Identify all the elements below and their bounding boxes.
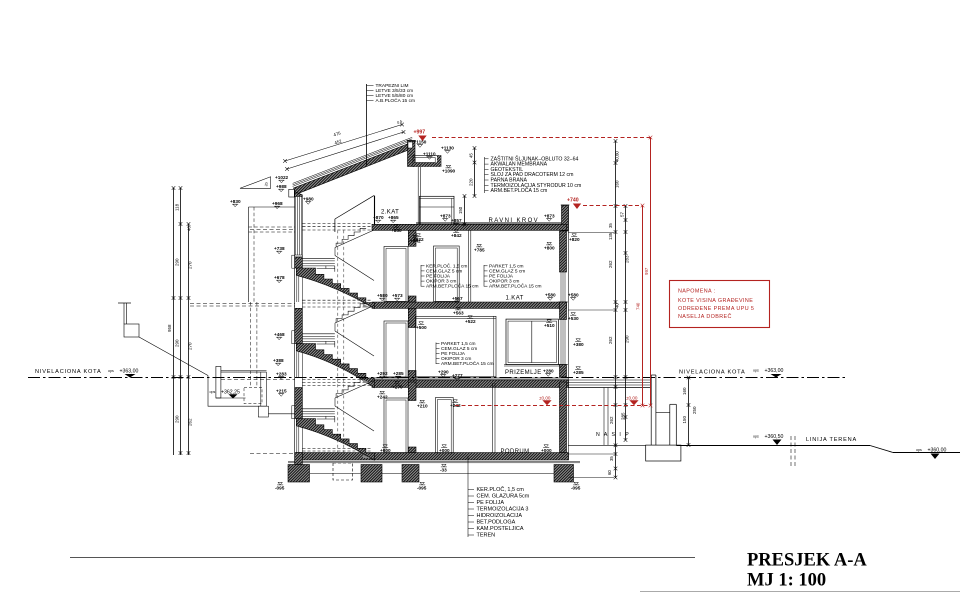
svg-text:160: 160 bbox=[615, 180, 620, 188]
svg-text:250: 250 bbox=[692, 406, 697, 414]
svg-text:285: 285 bbox=[621, 412, 626, 420]
svg-text:+277: +277 bbox=[452, 373, 463, 378]
svg-text:+530: +530 bbox=[568, 316, 579, 321]
svg-text:740: 740 bbox=[636, 302, 641, 310]
svg-text:+865: +865 bbox=[388, 215, 399, 220]
svg-text:40: 40 bbox=[615, 303, 620, 308]
svg-text:±0,00: ±0,00 bbox=[539, 396, 551, 401]
svg-text:ARM.BET.PLOČA 15 cm: ARM.BET.PLOČA 15 cm bbox=[441, 360, 494, 367]
svg-text:290: 290 bbox=[175, 415, 180, 423]
svg-text:150: 150 bbox=[682, 415, 687, 423]
svg-text:290: 290 bbox=[175, 339, 180, 347]
svg-text:+270: +270 bbox=[392, 385, 403, 390]
svg-text:958: 958 bbox=[167, 324, 172, 332]
svg-text:PARKET 1,5 cm: PARKET 1,5 cm bbox=[441, 341, 475, 347]
svg-text:+573: +573 bbox=[392, 293, 403, 298]
svg-text:+678: +678 bbox=[274, 275, 285, 280]
svg-text:+800: +800 bbox=[544, 246, 555, 251]
svg-text:+000: +000 bbox=[541, 448, 552, 453]
svg-text:ODREĐENE PREMA UPU 5: ODREĐENE PREMA UPU 5 bbox=[678, 306, 754, 312]
svg-text:290: 290 bbox=[625, 335, 630, 343]
svg-text:270: 270 bbox=[188, 342, 193, 350]
svg-text:+468: +468 bbox=[274, 332, 285, 337]
svg-text:+873: +873 bbox=[440, 214, 451, 219]
svg-text:+215: +215 bbox=[276, 389, 287, 394]
svg-text:+980: +980 bbox=[303, 197, 314, 202]
svg-text:+283: +283 bbox=[276, 372, 287, 377]
svg-text:-095: -095 bbox=[571, 486, 581, 491]
svg-text:LETVE 5/5/80 cm: LETVE 5/5/80 cm bbox=[376, 93, 414, 99]
svg-text:+290: +290 bbox=[438, 370, 449, 375]
svg-text:262: 262 bbox=[608, 336, 613, 344]
svg-text:+850: +850 bbox=[391, 228, 402, 233]
svg-text:+580: +580 bbox=[568, 293, 579, 298]
svg-text:35: 35 bbox=[608, 223, 613, 228]
svg-text:+1022: +1022 bbox=[275, 175, 289, 180]
svg-text:ops: ops bbox=[916, 448, 922, 452]
svg-text:40,60: 40,60 bbox=[615, 151, 620, 162]
svg-text:+1130: +1130 bbox=[441, 146, 454, 151]
svg-text:CEM.GLAZ 5 cm: CEM.GLAZ 5 cm bbox=[489, 268, 525, 274]
svg-text:TRAPEZNI LIM: TRAPEZNI LIM bbox=[376, 83, 409, 89]
svg-text:1.KAT: 1.KAT bbox=[506, 295, 524, 301]
svg-text:+857: +857 bbox=[451, 218, 462, 223]
svg-text:35: 35 bbox=[609, 456, 614, 461]
svg-text:ops: ops bbox=[753, 435, 759, 439]
svg-text:57: 57 bbox=[620, 211, 625, 217]
svg-text:PARKET 1,5 cm: PARKET 1,5 cm bbox=[489, 263, 523, 269]
svg-text:NIVELACIONA KOTA: NIVELACIONA KOTA bbox=[35, 369, 101, 375]
svg-text:+740: +740 bbox=[567, 198, 579, 204]
svg-text:+360,50: +360,50 bbox=[765, 434, 784, 440]
svg-text:NIVELACIONA KOTA: NIVELACIONA KOTA bbox=[679, 370, 745, 376]
svg-text:+522: +522 bbox=[465, 319, 476, 324]
svg-text:ops: ops bbox=[753, 369, 759, 373]
svg-text:LINIJA TERENA: LINIJA TERENA bbox=[806, 437, 857, 443]
svg-text:ops: ops bbox=[108, 369, 114, 373]
svg-text:LETVE 3/5/33 cm: LETVE 3/5/33 cm bbox=[376, 88, 414, 94]
svg-text:±0,00: ±0,00 bbox=[626, 396, 638, 401]
svg-text:262: 262 bbox=[608, 260, 613, 268]
svg-text:ARM.BET.PLOČA 15 cm: ARM.BET.PLOČA 15 cm bbox=[489, 283, 542, 290]
svg-text:+292: +292 bbox=[377, 371, 388, 376]
svg-text:KAM.POSTELJICA: KAM.POSTELJICA bbox=[477, 526, 524, 532]
svg-text:+000: +000 bbox=[380, 448, 391, 453]
svg-text:+285: +285 bbox=[573, 370, 584, 375]
svg-text:KOTE VISINA GRAĐEVINE: KOTE VISINA GRAĐEVINE bbox=[678, 298, 753, 304]
svg-text:+822: +822 bbox=[413, 237, 424, 242]
svg-text:RAVNI KROV: RAVNI KROV bbox=[489, 218, 540, 224]
svg-text:40: 40 bbox=[187, 225, 192, 231]
svg-text:+968: +968 bbox=[272, 201, 283, 206]
svg-text:+363,00: +363,00 bbox=[765, 368, 784, 374]
svg-text:OKIPOR 3 cm: OKIPOR 3 cm bbox=[426, 279, 456, 285]
svg-text:+873: +873 bbox=[544, 214, 555, 219]
svg-text:-33: -33 bbox=[440, 468, 447, 473]
svg-text:PE FOLIJA: PE FOLIJA bbox=[426, 274, 451, 280]
svg-text:+580: +580 bbox=[377, 293, 388, 298]
svg-text:+1110: +1110 bbox=[423, 152, 436, 157]
svg-text:+285: +285 bbox=[393, 371, 404, 376]
svg-text:-095: -095 bbox=[275, 486, 285, 491]
svg-text:262: 262 bbox=[609, 416, 614, 424]
svg-text:+510: +510 bbox=[544, 323, 555, 328]
svg-text:160: 160 bbox=[682, 387, 687, 395]
svg-text:+870: +870 bbox=[373, 215, 384, 220]
svg-text:PODRUM: PODRUM bbox=[501, 449, 530, 455]
svg-text:+363,00: +363,00 bbox=[120, 368, 139, 374]
svg-text:ARM.BET.PLOČA 15 cm: ARM.BET.PLOČA 15 cm bbox=[426, 283, 479, 290]
svg-text:NASELJA DOBREČ: NASELJA DOBREČ bbox=[678, 313, 732, 320]
svg-text:CEM. GLAZURA 5cm: CEM. GLAZURA 5cm bbox=[477, 494, 530, 500]
svg-text:A.B.PLOČA 15 cm: A.B.PLOČA 15 cm bbox=[376, 97, 415, 104]
svg-text:KER.PLOČ, 1,5 cm: KER.PLOČ, 1,5 cm bbox=[477, 486, 525, 493]
svg-text:+738: +738 bbox=[274, 246, 285, 251]
svg-text:60: 60 bbox=[607, 470, 612, 475]
svg-text:+988: +988 bbox=[276, 184, 287, 189]
svg-text:TERMOIZOLACIJA 3: TERMOIZOLACIJA 3 bbox=[477, 507, 529, 513]
svg-text:+388: +388 bbox=[273, 358, 284, 363]
svg-text:NAPOMENA :: NAPOMENA : bbox=[678, 289, 716, 295]
svg-text:+360,00: +360,00 bbox=[928, 447, 947, 453]
svg-text:KER.PLOČ. 1,5 cm: KER.PLOČ. 1,5 cm bbox=[426, 262, 467, 269]
svg-text:150: 150 bbox=[458, 206, 463, 214]
svg-text:PE FOLIJA: PE FOLIJA bbox=[489, 274, 514, 280]
svg-text:+567: +567 bbox=[452, 296, 463, 301]
svg-text:220: 220 bbox=[469, 178, 474, 186]
svg-text:+563: +563 bbox=[453, 311, 464, 316]
svg-text:TEREN: TEREN bbox=[477, 533, 496, 539]
svg-text:BET.PODLOGA: BET.PODLOGA bbox=[477, 520, 516, 526]
svg-text:+785: +785 bbox=[474, 248, 485, 253]
svg-text:+820: +820 bbox=[569, 237, 580, 242]
svg-text:+380: +380 bbox=[573, 342, 584, 347]
svg-text:PE FOLIJA: PE FOLIJA bbox=[477, 500, 505, 506]
svg-text:HIDROIZOLACIJA: HIDROIZOLACIJA bbox=[477, 513, 523, 519]
svg-text:+210: +210 bbox=[417, 404, 428, 409]
svg-text:+000: +000 bbox=[439, 448, 450, 453]
svg-text:PRESJEK A-A: PRESJEK A-A bbox=[747, 551, 867, 571]
svg-text:ops: ops bbox=[210, 390, 216, 394]
svg-text:997: 997 bbox=[644, 267, 649, 275]
svg-text:OKIPOR 3 cm: OKIPOR 3 cm bbox=[441, 356, 471, 362]
svg-text:CEM.GLAZ 5 cm: CEM.GLAZ 5 cm bbox=[426, 268, 462, 274]
svg-text:+997: +997 bbox=[414, 130, 426, 136]
svg-text:+842: +842 bbox=[451, 233, 462, 238]
svg-text:135: 135 bbox=[608, 232, 613, 240]
svg-text:+242: +242 bbox=[377, 395, 388, 400]
svg-text:MJ 1: 100: MJ 1: 100 bbox=[747, 571, 826, 591]
svg-text:-095: -095 bbox=[417, 486, 427, 491]
svg-text:+500: +500 bbox=[416, 325, 427, 330]
svg-text:PRIZEMLJE: PRIZEMLJE bbox=[505, 370, 542, 376]
svg-text:CEM.GLAZ 5 cm: CEM.GLAZ 5 cm bbox=[441, 346, 477, 352]
svg-text:290: 290 bbox=[175, 258, 180, 266]
svg-text:+830: +830 bbox=[230, 199, 241, 204]
svg-text:283: 283 bbox=[625, 255, 630, 263]
svg-text:270: 270 bbox=[188, 261, 193, 269]
svg-text:+1150: +1150 bbox=[414, 140, 427, 145]
svg-text:262: 262 bbox=[188, 418, 193, 426]
svg-text:45: 45 bbox=[469, 153, 474, 158]
svg-text:PE FOLIJA: PE FOLIJA bbox=[441, 351, 466, 357]
svg-text:+580: +580 bbox=[545, 293, 556, 298]
svg-text:ARM.BET.PLOČA 15 cm: ARM.BET.PLOČA 15 cm bbox=[491, 187, 548, 194]
svg-text:OKIPOR 3 cm: OKIPOR 3 cm bbox=[489, 279, 519, 285]
svg-text:+1090: +1090 bbox=[442, 169, 456, 174]
svg-text:118: 118 bbox=[175, 203, 180, 211]
svg-text:+280: +280 bbox=[543, 369, 554, 374]
